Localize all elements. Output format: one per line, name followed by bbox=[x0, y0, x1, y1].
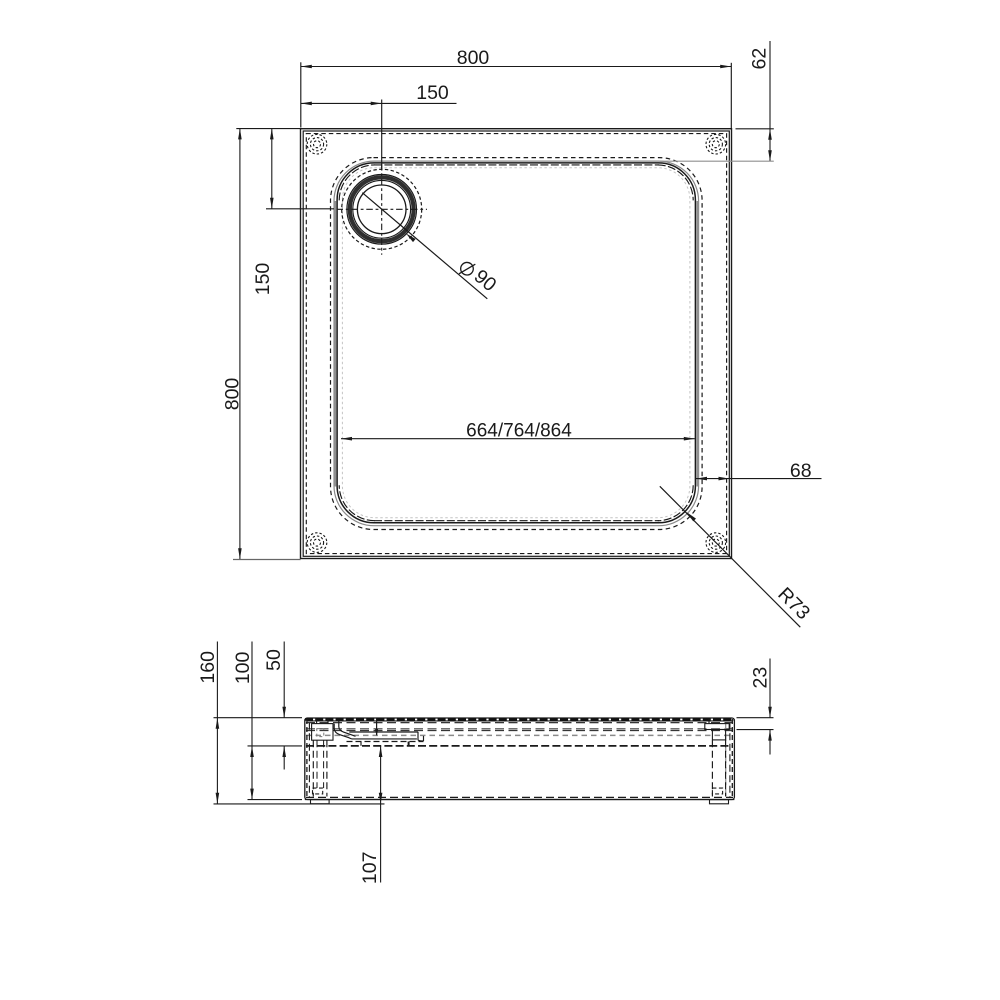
svg-text:23: 23 bbox=[749, 667, 771, 689]
svg-text:150: 150 bbox=[252, 263, 274, 296]
svg-text:107: 107 bbox=[359, 852, 381, 885]
svg-text:100: 100 bbox=[232, 651, 254, 684]
svg-text:68: 68 bbox=[790, 460, 812, 482]
svg-text:800: 800 bbox=[221, 378, 243, 411]
svg-text:800: 800 bbox=[457, 47, 490, 69]
svg-text:664/764/864: 664/764/864 bbox=[466, 421, 572, 442]
svg-text:160: 160 bbox=[197, 651, 219, 684]
svg-text:150: 150 bbox=[416, 82, 449, 104]
svg-text:62: 62 bbox=[748, 48, 770, 70]
svg-text:50: 50 bbox=[263, 649, 285, 671]
